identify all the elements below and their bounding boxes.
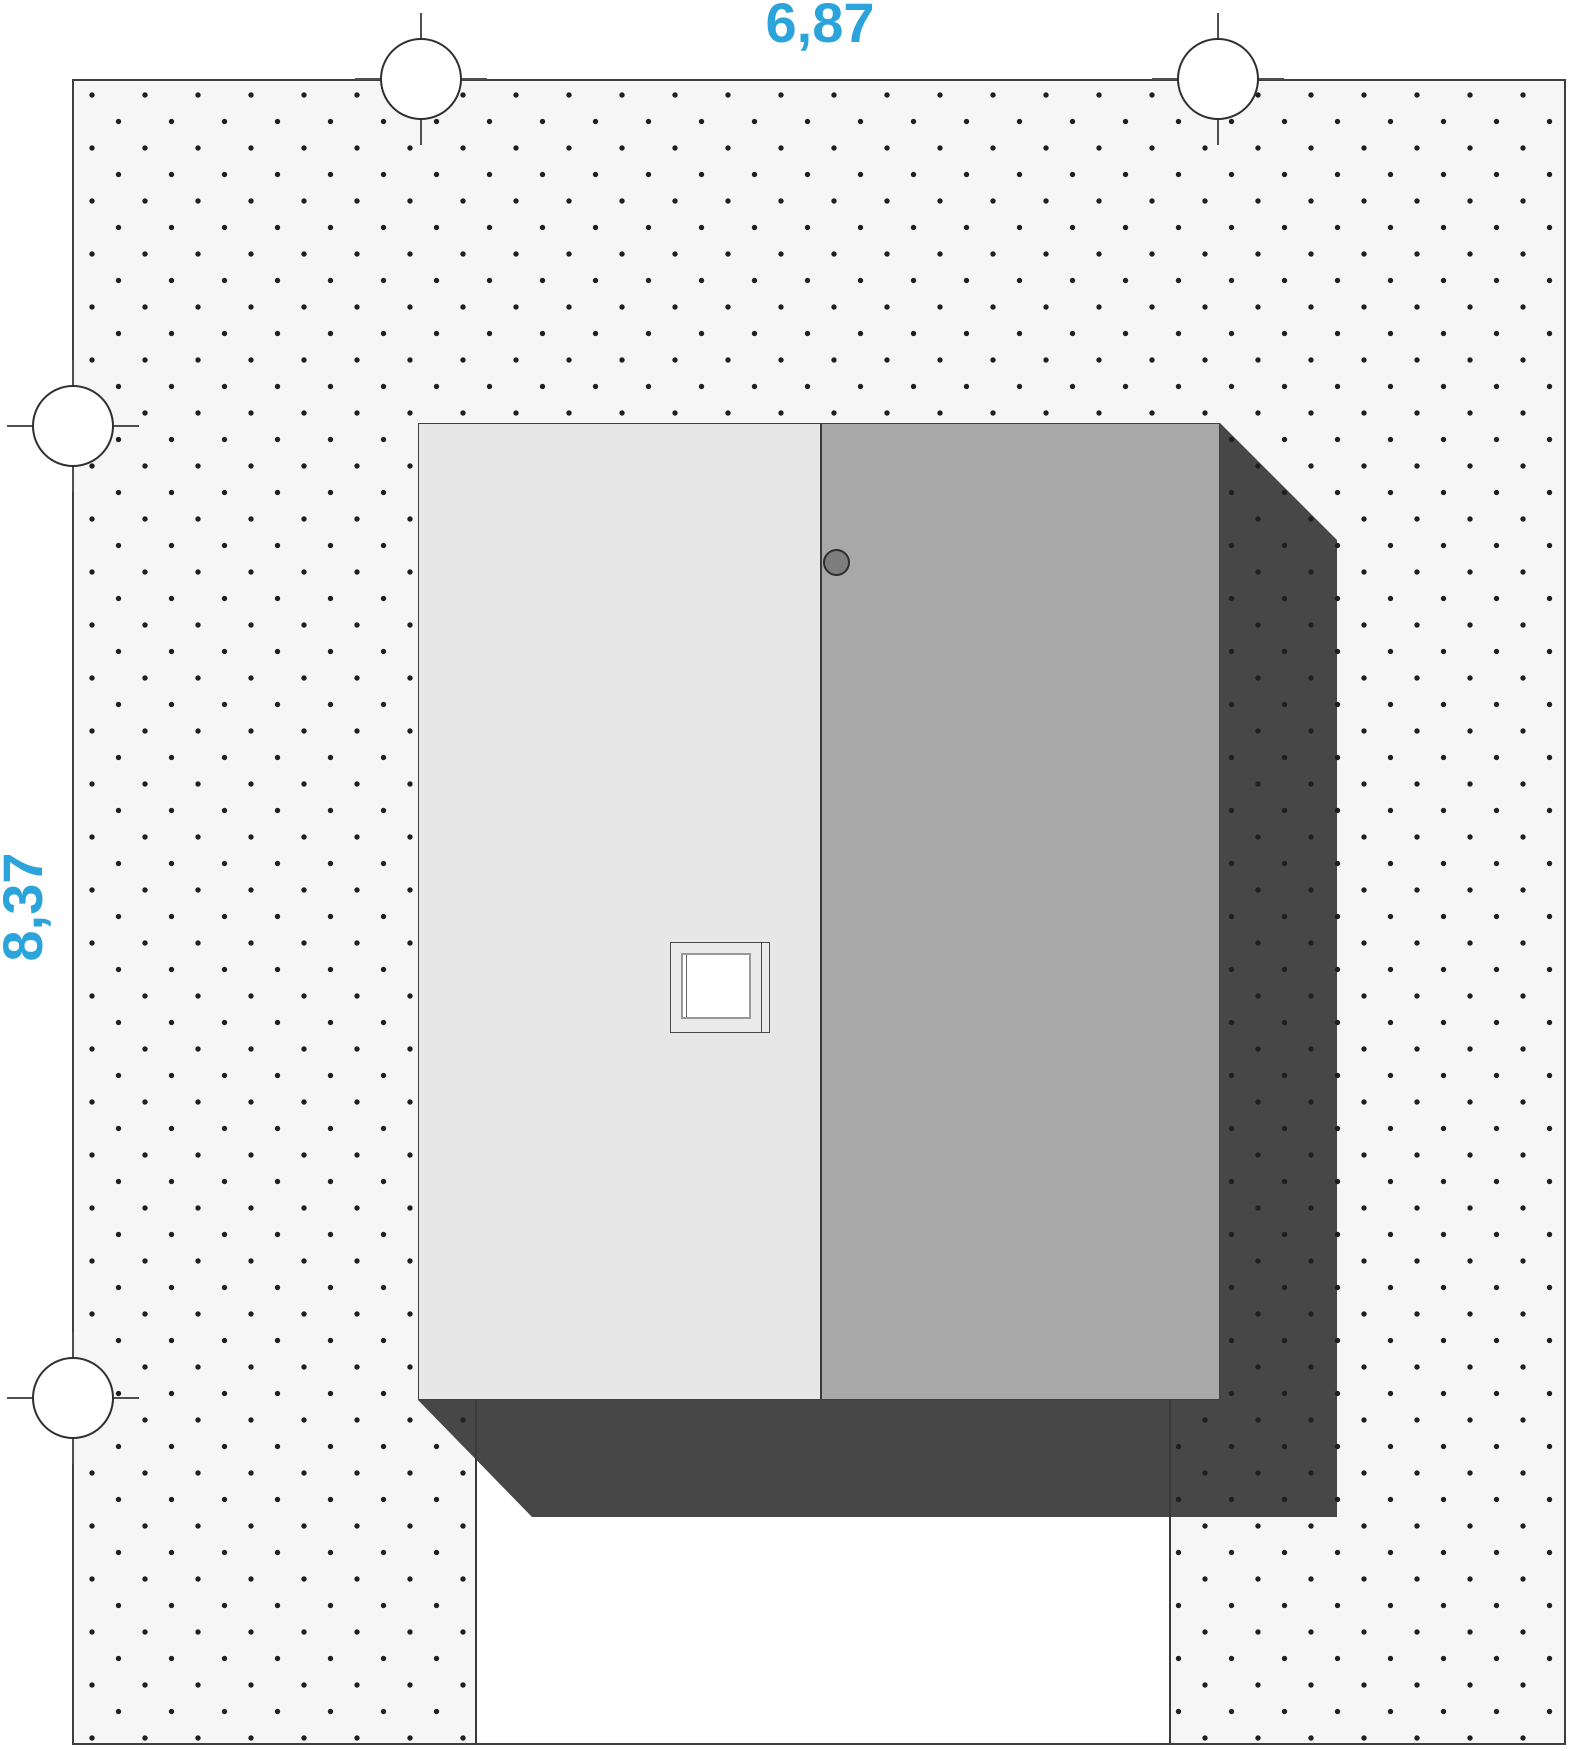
roof-right-slope	[820, 424, 1219, 1399]
tree-tick	[72, 360, 74, 386]
site-plan-canvas: 6,87 8,37	[0, 0, 1571, 1751]
skylight-pane-line	[686, 955, 687, 1017]
width-dimension-label: 6,87	[720, 0, 920, 51]
height-dimension-label: 8,37	[0, 847, 51, 967]
tree-tick	[1217, 119, 1219, 145]
tree-tick	[1217, 13, 1219, 39]
tree-tick	[420, 119, 422, 145]
tree-tick	[7, 425, 33, 427]
tree-circle-icon	[32, 385, 114, 467]
tree-tick	[113, 1397, 139, 1399]
tree-tick	[113, 425, 139, 427]
tree-tick	[1152, 78, 1178, 80]
tree-tick	[72, 466, 74, 492]
tree-circle-icon	[32, 1357, 114, 1439]
building-roof	[418, 423, 1220, 1400]
skylight-frame-line	[761, 943, 763, 1032]
tree-tick	[1258, 78, 1284, 80]
tree-tick	[72, 1438, 74, 1464]
roof-vent-icon	[823, 549, 850, 576]
tree-tick	[7, 1397, 33, 1399]
tree-circle-icon	[1177, 38, 1259, 120]
skylight	[670, 942, 770, 1033]
tree-circle-icon	[380, 38, 462, 120]
tree-tick	[355, 78, 381, 80]
tree-tick	[420, 13, 422, 39]
roof-left-slope	[419, 424, 820, 1399]
skylight-pane	[681, 953, 751, 1019]
tree-tick	[72, 1332, 74, 1358]
tree-tick	[461, 78, 487, 80]
cutout-left-line	[475, 1400, 477, 1743]
cutout-right-line	[1169, 1400, 1171, 1743]
